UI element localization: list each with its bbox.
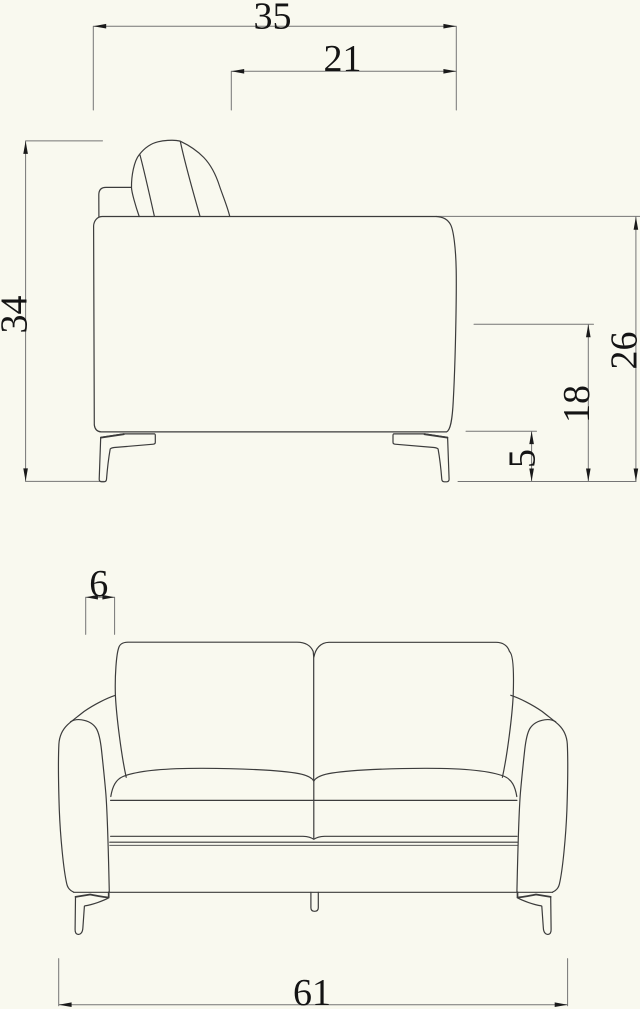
svg-text:18: 18 <box>556 385 598 423</box>
svg-text:35: 35 <box>254 0 292 38</box>
svg-text:34: 34 <box>0 296 36 334</box>
svg-text:6: 6 <box>89 563 108 605</box>
svg-text:61: 61 <box>293 972 331 1009</box>
svg-text:21: 21 <box>324 38 362 80</box>
svg-text:5: 5 <box>501 449 543 468</box>
svg-text:26: 26 <box>604 332 640 370</box>
